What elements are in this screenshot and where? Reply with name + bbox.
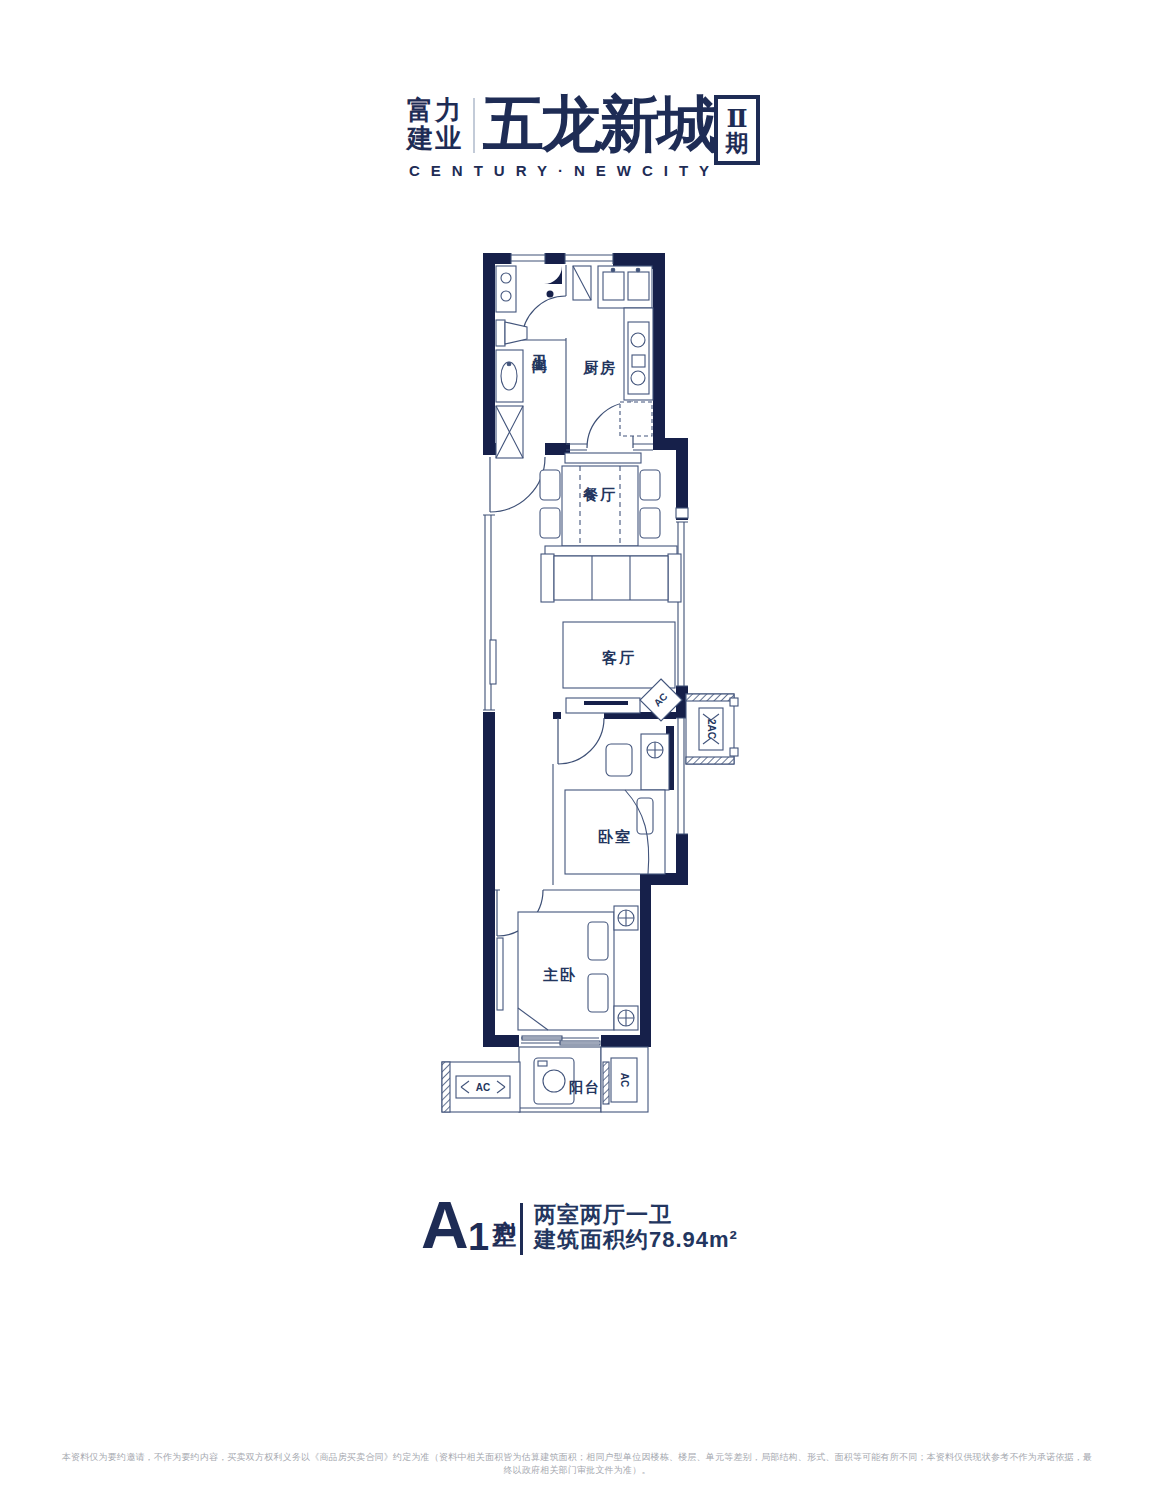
poster-page: 富力 建业 五龙新城 Ⅱ 期 CENTURY·NEWCITY [0, 0, 1154, 1500]
room-label-master: 主卧 [543, 966, 577, 983]
bedroom-door [558, 718, 604, 764]
entry-door [490, 457, 545, 512]
room-label-bathroom: 卫生间 [532, 342, 549, 374]
room-label-kitchen: 厨房 [582, 359, 617, 376]
tv-icon [584, 701, 628, 705]
chair [606, 744, 632, 776]
room-kitchen [573, 266, 653, 436]
unit-letter: A [421, 1192, 469, 1258]
pillow [588, 922, 608, 960]
room-balcony [534, 1058, 574, 1104]
sofa [545, 546, 677, 556]
tv-cabinet [566, 698, 640, 713]
floor-plan-svg: 卫生间 厨房 餐厅 客厅 卧室 主卧 阳台 AC 2AC AC AC [0, 0, 1154, 1500]
unit-spec-rooms: 两室两厅一卫 [534, 1202, 738, 1227]
toilet-icon [496, 320, 505, 346]
chair [640, 470, 660, 500]
chair [540, 508, 560, 538]
room-bedroom [565, 734, 669, 874]
ac-platform-side-label: 2AC [706, 719, 717, 739]
room-label-living: 客厅 [601, 649, 636, 666]
unit-divider [520, 1203, 523, 1255]
unit-spec-area: 建筑面积约78.94m² [534, 1227, 738, 1252]
unit-suffix: 户型 [491, 1201, 517, 1205]
disclaimer-text: 本资料仅为要约邀请，不作为要约内容，买卖双方权利义务以《商品房买卖合同》约定为准… [0, 1451, 1154, 1477]
room-bathroom [496, 266, 562, 458]
unit-number: 1 [468, 1218, 489, 1256]
ac-platform-right-label: AC [619, 1073, 630, 1087]
room-label-dining: 餐厅 [582, 486, 617, 503]
chair [540, 470, 560, 500]
unit-specs: 两室两厅一卫 建筑面积约78.94m² [534, 1202, 738, 1252]
room-label-balcony: 阳台 [569, 1079, 601, 1095]
dining-table [562, 466, 638, 546]
pillow [637, 798, 653, 834]
ac-platform-left-label: AC [476, 1082, 490, 1093]
fridge-icon [620, 402, 652, 436]
pillow [588, 974, 608, 1012]
chair [640, 508, 660, 538]
bathroom-door [522, 296, 566, 340]
room-living [490, 546, 682, 721]
room-label-bedroom: 卧室 [598, 828, 632, 845]
shower-icon [544, 266, 562, 284]
